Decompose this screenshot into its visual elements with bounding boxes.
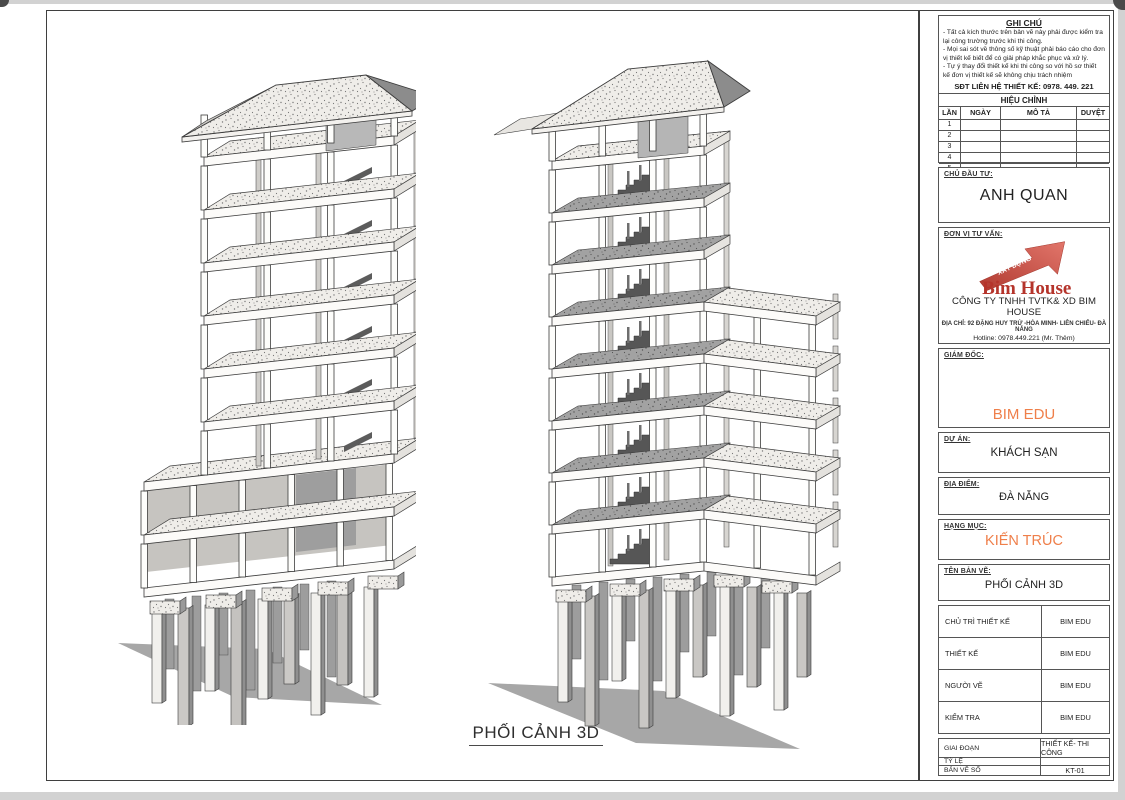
revision-cell-empty bbox=[1077, 142, 1109, 153]
revision-cell-empty bbox=[1077, 120, 1109, 131]
director-label: GIÁM ĐỐC: bbox=[939, 349, 1109, 359]
drawing-sheet: PHỐI CẢNH 3D GHI CHÚ - Tất cả kích thước… bbox=[0, 4, 1118, 792]
project-section: DỰ ÁN: KHÁCH SẠN bbox=[938, 432, 1110, 473]
personnel-role-label: KIỂM TRA bbox=[939, 702, 1042, 733]
consultant-company: CÔNG TY TNHH TVTK& XD BIM HOUSE bbox=[939, 296, 1109, 318]
drawing-name-label: TÊN BẢN VẼ: bbox=[939, 565, 1109, 575]
app-background: PHỐI CẢNH 3D GHI CHÚ - Tất cả kích thước… bbox=[0, 0, 1125, 800]
drawing-caption-text: PHỐI CẢNH 3D bbox=[469, 723, 604, 746]
consultant-hotline: Hotline: 0978.449.221 (Mr. Thêm) bbox=[973, 335, 1075, 342]
table-row: TỶ LỆ bbox=[939, 758, 1109, 766]
category-label: HẠNG MỤC: bbox=[939, 520, 1109, 530]
revision-row-number: 3 bbox=[939, 142, 961, 153]
revision-cell-empty bbox=[961, 142, 1001, 153]
project-value: KHÁCH SẠN bbox=[939, 447, 1109, 459]
revision-col-header: LẦN bbox=[939, 107, 961, 120]
revision-row-number: 2 bbox=[939, 131, 961, 142]
consultant-section: ĐƠN VỊ TƯ VẤN: XÂY DỰNG Bim House CÔNG T… bbox=[938, 227, 1110, 344]
revision-cell-empty bbox=[1077, 131, 1109, 142]
designer-contact: SĐT LIÊN HỆ THIẾT KẾ: 0978. 449. 221 bbox=[939, 82, 1109, 91]
personnel-role-value: BIM EDU bbox=[1042, 670, 1109, 701]
meta-table: GIAI ĐOẠN THIẾT KẾ- THI CÔNG TỶ LỆ BẢN V… bbox=[938, 738, 1110, 776]
table-row: GIAI ĐOẠN THIẾT KẾ- THI CÔNG bbox=[939, 739, 1109, 758]
roof-right bbox=[494, 61, 750, 135]
location-section: ĐỊA ĐIỂM: ĐÀ NẴNG bbox=[938, 477, 1110, 514]
director-value: BIM EDU bbox=[939, 406, 1109, 427]
meta-label: BẢN VẼ SỐ bbox=[939, 766, 1041, 775]
location-value: ĐÀ NẴNG bbox=[939, 491, 1109, 503]
personnel-role-value: BIM EDU bbox=[1042, 638, 1109, 669]
revision-cell-empty bbox=[961, 131, 1001, 142]
notes-title: GHI CHÚ bbox=[939, 18, 1109, 28]
consultant-address: ĐỊA CHỈ: 92 ĐẶNG HUY TRỨ -HÒA MINH- LIÊN… bbox=[939, 321, 1109, 333]
table-row: CHỦ TRÌ THIẾT KẾ BIM EDU bbox=[939, 606, 1109, 638]
logo-wordmark: Bim House bbox=[982, 278, 1071, 296]
table-row: THIẾT KẾ BIM EDU bbox=[939, 638, 1109, 670]
personnel-role-label: NGƯỜI VẼ bbox=[939, 670, 1042, 701]
table-row: KIỂM TRA BIM EDU bbox=[939, 702, 1109, 733]
personnel-role-label: CHỦ TRÌ THIẾT KẾ bbox=[939, 606, 1042, 637]
notes-line: - Tất cả kích thước trên bản vẽ này phải… bbox=[943, 29, 1105, 46]
revision-cell-empty bbox=[1001, 120, 1077, 131]
owner-value: ANH QUAN bbox=[939, 187, 1109, 205]
perspective-view-right bbox=[488, 41, 848, 761]
revision-col-header: DUYỆT bbox=[1077, 107, 1109, 120]
personnel-role-label: THIẾT KẾ bbox=[939, 638, 1042, 669]
sheet-frame: PHỐI CẢNH 3D GHI CHÚ - Tất cả kích thước… bbox=[46, 10, 1114, 781]
owner-label: CHỦ ĐẦU TƯ: bbox=[939, 168, 1109, 178]
drawing-name-value: PHỐI CẢNH 3D bbox=[939, 579, 1109, 591]
notes-body: - Tất cả kích thước trên bản vẽ này phải… bbox=[939, 28, 1109, 80]
drawing-caption: PHỐI CẢNH 3D bbox=[431, 723, 641, 746]
location-label: ĐỊA ĐIỂM: bbox=[939, 478, 1109, 488]
meta-value bbox=[1041, 758, 1109, 765]
revision-title: HIỆU CHỈNH bbox=[939, 94, 1109, 107]
revision-row-number: 4 bbox=[939, 153, 961, 164]
notes-section: GHI CHÚ - Tất cả kích thước trên bản vẽ … bbox=[938, 15, 1110, 163]
meta-label: TỶ LỆ bbox=[939, 758, 1041, 765]
revision-cell-empty bbox=[1001, 142, 1077, 153]
notes-line: - Tự ý thay đổi thiết kế khi thi công so… bbox=[943, 63, 1105, 80]
revision-cell-empty bbox=[961, 153, 1001, 164]
revision-col-header: NGÀY bbox=[961, 107, 1001, 120]
podium-left bbox=[141, 438, 416, 597]
drawing-name-section: TÊN BẢN VẼ: PHỐI CẢNH 3D bbox=[938, 564, 1110, 601]
revision-row-number: 1 bbox=[939, 120, 961, 131]
revision-cell-empty bbox=[961, 120, 1001, 131]
owner-section: CHỦ ĐẦU TƯ: ANH QUAN bbox=[938, 167, 1110, 223]
personnel-role-value: BIM EDU bbox=[1042, 606, 1109, 637]
perspective-view-left bbox=[116, 45, 416, 725]
consultant-label: ĐƠN VỊ TƯ VẤN: bbox=[939, 228, 1003, 238]
notes-line: - Mọi sai sót về thông số kỹ thuật phải … bbox=[943, 46, 1105, 63]
personnel-role-value: BIM EDU bbox=[1042, 702, 1109, 733]
project-label: DỰ ÁN: bbox=[939, 433, 1109, 443]
revision-cell-empty bbox=[1001, 131, 1077, 142]
meta-label: GIAI ĐOẠN bbox=[939, 739, 1041, 757]
category-section: HẠNG MỤC: KIẾN TRÚC bbox=[938, 519, 1110, 560]
bim-house-logo: XÂY DỰNG Bim House bbox=[949, 238, 1099, 296]
personnel-table: CHỦ TRÌ THIẾT KẾ BIM EDU THIẾT KẾ BIM ED… bbox=[938, 605, 1110, 734]
titleblock-divider bbox=[918, 11, 920, 780]
revision-table: HIỆU CHỈNH LẦN NGÀY MÔ TẢ DUYỆT 1 2 3 bbox=[939, 93, 1109, 174]
revision-col-header: MÔ TẢ bbox=[1001, 107, 1077, 120]
revision-cell-empty bbox=[1001, 153, 1077, 164]
revision-cell-empty bbox=[1077, 153, 1109, 164]
table-row: NGƯỜI VẼ BIM EDU bbox=[939, 670, 1109, 702]
meta-value: THIẾT KẾ- THI CÔNG bbox=[1041, 739, 1109, 757]
director-section: GIÁM ĐỐC: BIM EDU bbox=[938, 348, 1110, 428]
meta-value: KT-01 bbox=[1041, 766, 1109, 775]
title-block: GHI CHÚ - Tất cả kích thước trên bản vẽ … bbox=[938, 15, 1110, 776]
table-row: BẢN VẼ SỐ KT-01 bbox=[939, 766, 1109, 775]
category-value: KIẾN TRÚC bbox=[939, 533, 1109, 549]
